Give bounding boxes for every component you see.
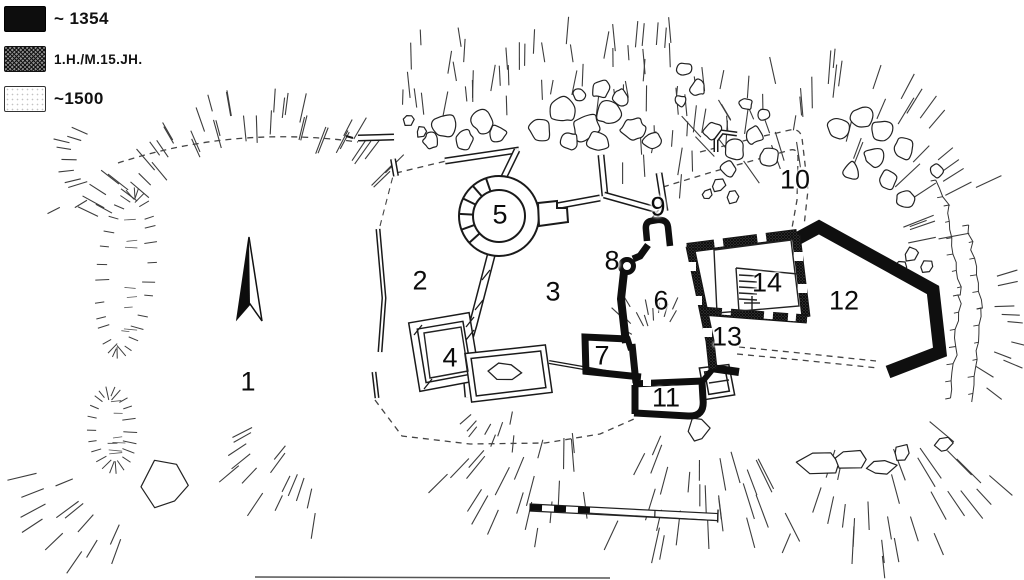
area-label-4: 4 [442, 343, 457, 374]
legend-item-1354: ~ 1354 [4, 6, 142, 32]
legend-swatch-1354 [4, 6, 46, 32]
page-edge-line [255, 577, 610, 578]
plan-drawing [0, 0, 1024, 580]
area-label-5: 5 [492, 200, 507, 231]
area-label-2: 2 [412, 266, 427, 297]
area-label-7: 7 [594, 341, 609, 372]
legend: ~ 1354 1.H./M.15.JH. ~1500 [4, 6, 142, 126]
castle-site-plan: 1 2 3 4 5 6 7 8 9 10 11 12 13 14 ~ 1354 … [0, 0, 1024, 580]
legend-label-1500: ~1500 [54, 89, 104, 109]
tower-5 [459, 176, 568, 256]
legend-swatch-1500 [4, 86, 46, 112]
legend-item-15th-century: 1.H./M.15.JH. [4, 46, 142, 72]
scale-bar [530, 503, 718, 523]
area-label-14: 14 [752, 268, 782, 299]
legend-label-1354: ~ 1354 [54, 9, 109, 29]
legend-swatch-15th-century [4, 46, 46, 72]
area-label-12: 12 [829, 286, 859, 317]
area-label-1: 1 [240, 367, 255, 398]
north-arrow [237, 237, 262, 321]
legend-item-1500: ~1500 [4, 86, 142, 112]
area-label-11: 11 [652, 383, 680, 414]
area-label-9: 9 [650, 192, 665, 223]
area-label-13: 13 [712, 322, 742, 353]
legend-label-15th-century: 1.H./M.15.JH. [54, 52, 142, 67]
area-label-6: 6 [653, 286, 668, 317]
area-label-3: 3 [545, 277, 560, 308]
area-label-10: 10 [780, 165, 810, 196]
area-label-8: 8 [604, 246, 619, 277]
